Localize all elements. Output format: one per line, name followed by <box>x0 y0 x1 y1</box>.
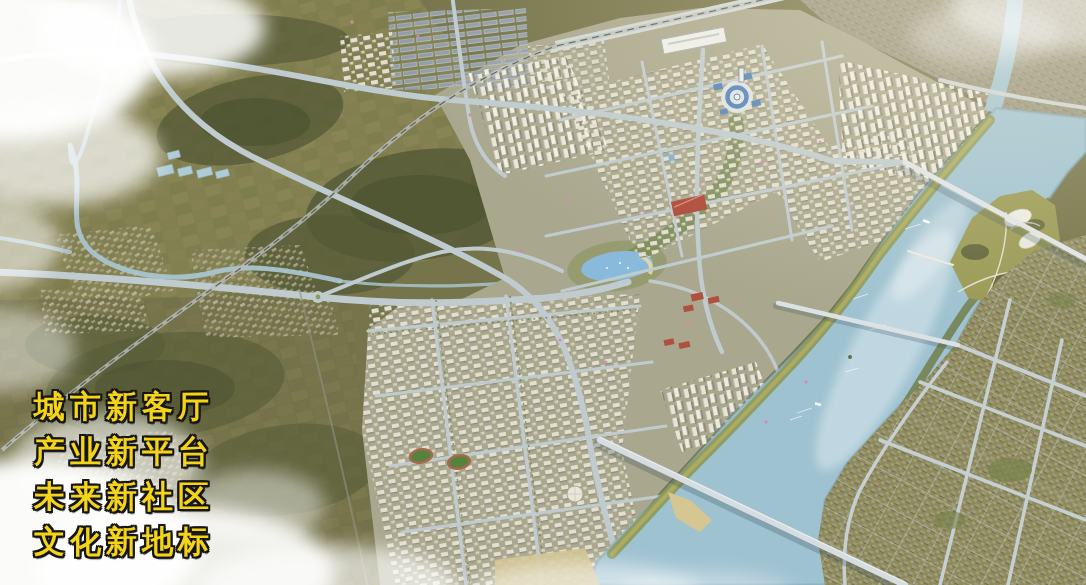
slogan-line-1: 城市新客厅 <box>34 384 214 429</box>
slogan-line-3: 未来新社区 <box>34 474 214 519</box>
slogan-overlay: 城市新客厅 产业新平台 未来新社区 文化新地标 <box>34 384 214 564</box>
masterplan-rendering: 城市新客厅 产业新平台 未来新社区 文化新地标 <box>0 0 1086 585</box>
slogan-line-2: 产业新平台 <box>34 429 214 474</box>
slogan-line-4: 文化新地标 <box>34 519 214 564</box>
